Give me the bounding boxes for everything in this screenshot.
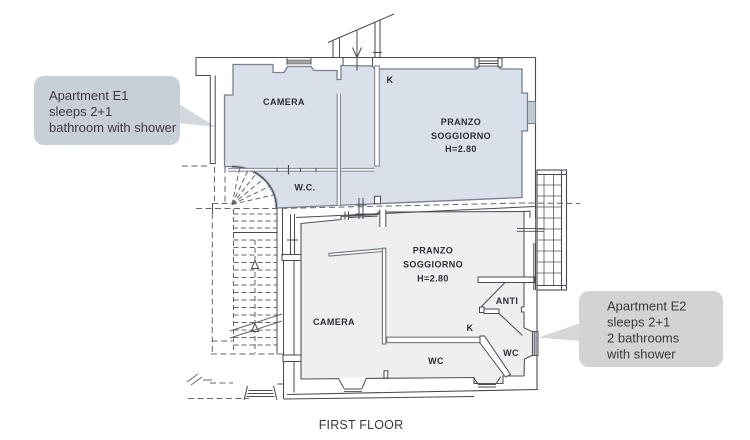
svg-text:K: K bbox=[467, 323, 474, 333]
svg-text:WC: WC bbox=[428, 356, 444, 366]
svg-text:with shower: with shower bbox=[606, 347, 676, 362]
svg-text:WC: WC bbox=[503, 348, 519, 358]
svg-text:sleeps 2+1: sleeps 2+1 bbox=[607, 315, 670, 330]
svg-text:sleeps 2+1: sleeps 2+1 bbox=[49, 104, 112, 119]
svg-text:SOGGIORNO: SOGGIORNO bbox=[431, 131, 491, 141]
svg-text:PRANZO: PRANZO bbox=[441, 117, 481, 127]
svg-text:K: K bbox=[387, 75, 394, 85]
svg-text:FIRST FLOOR: FIRST FLOOR bbox=[319, 418, 404, 432]
svg-text:ANTI: ANTI bbox=[496, 296, 519, 306]
svg-text:CAMERA: CAMERA bbox=[313, 317, 355, 327]
svg-text:W.C.: W.C. bbox=[294, 183, 315, 193]
svg-text:bathroom with shower: bathroom with shower bbox=[49, 120, 177, 135]
svg-text:Apartment E1: Apartment E1 bbox=[49, 88, 129, 103]
svg-text:H=2.80: H=2.80 bbox=[445, 144, 477, 154]
svg-text:Apartment E2: Apartment E2 bbox=[607, 299, 687, 314]
svg-text:PRANZO: PRANZO bbox=[413, 246, 453, 256]
svg-text:SOGGIORNO: SOGGIORNO bbox=[403, 260, 463, 270]
svg-text:CAMERA: CAMERA bbox=[263, 97, 305, 107]
svg-text:2 bathrooms: 2 bathrooms bbox=[607, 331, 680, 346]
svg-text:H=2.80: H=2.80 bbox=[417, 274, 449, 284]
